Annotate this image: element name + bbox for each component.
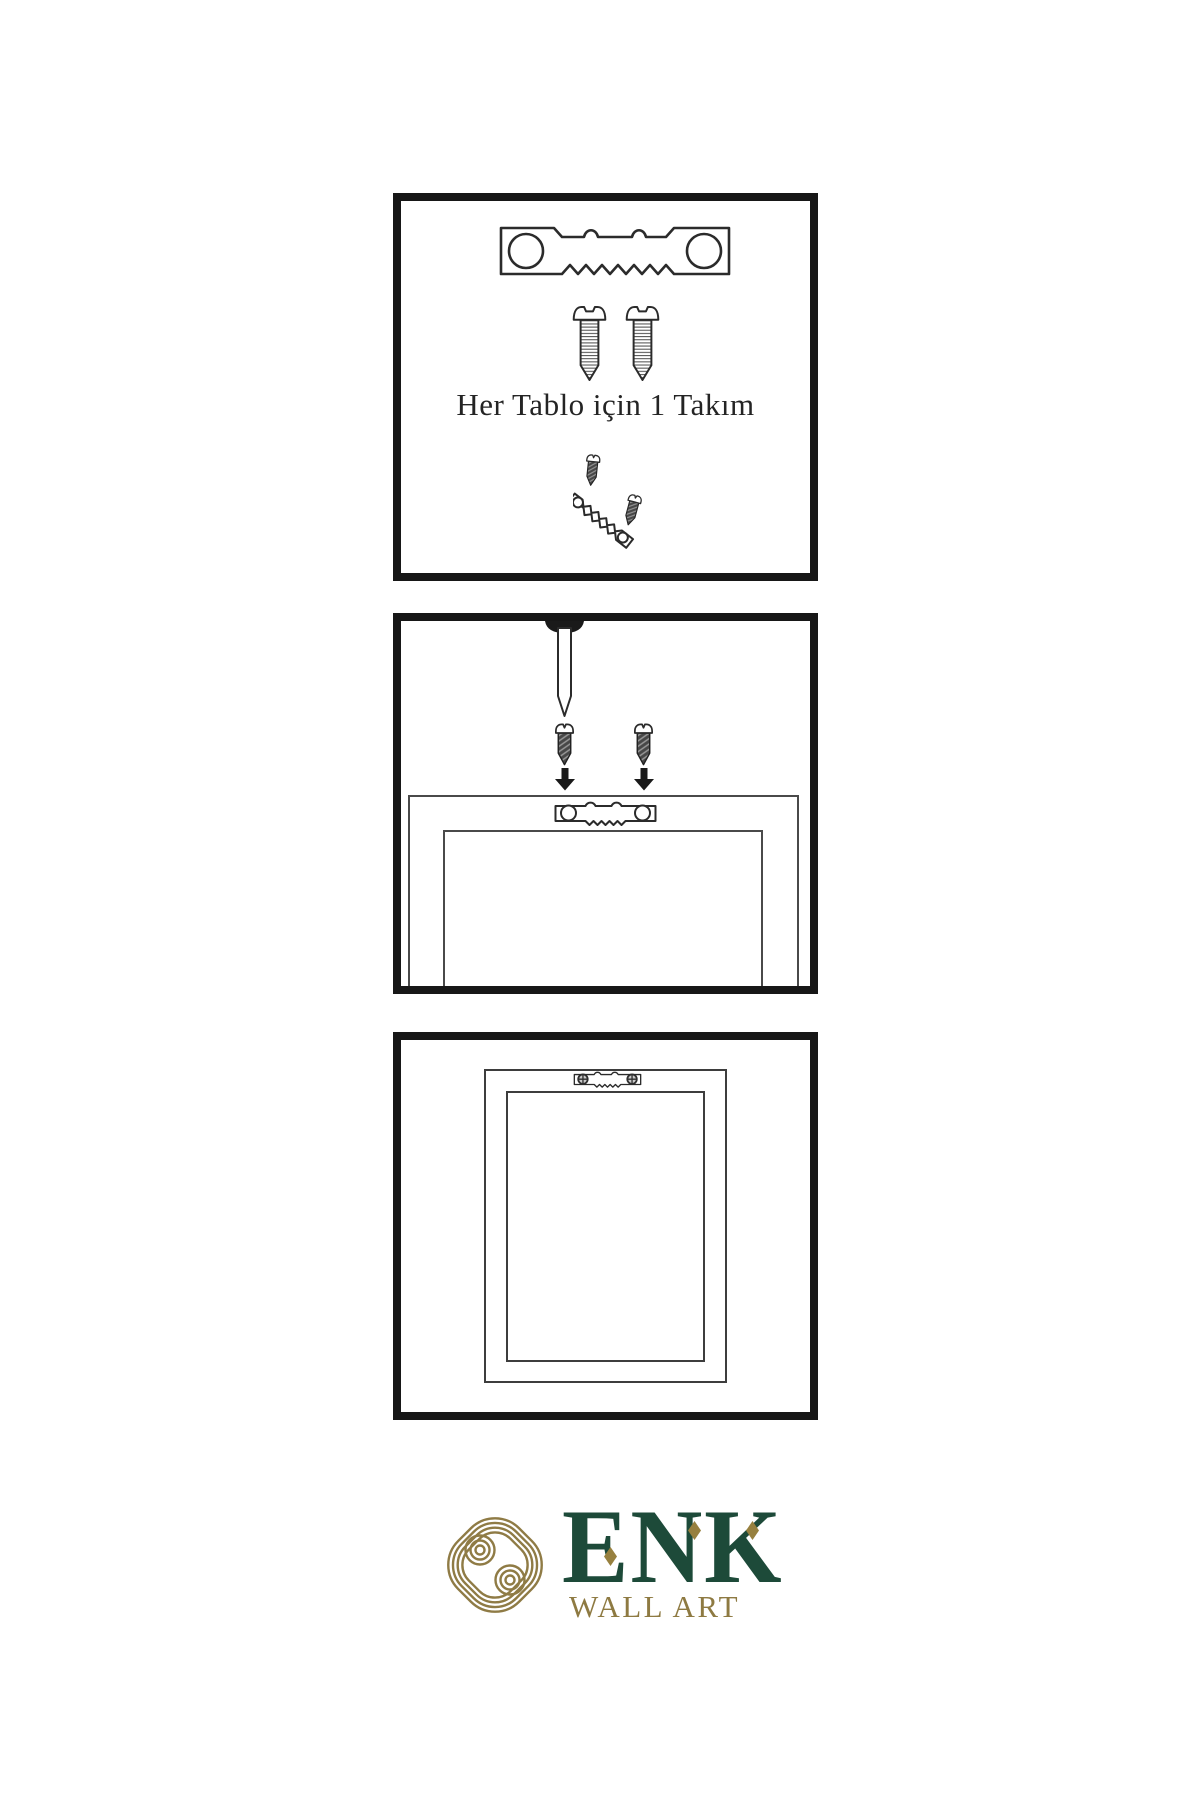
step-2-panel bbox=[393, 613, 818, 994]
arrow-down-icon bbox=[555, 768, 575, 791]
tilted-hanger-with-screws-icon bbox=[573, 449, 659, 559]
sawtooth-hanger-icon bbox=[553, 800, 658, 827]
kit-caption: Her Tablo için 1 Takım bbox=[401, 387, 810, 423]
screw-icon bbox=[553, 722, 576, 767]
instruction-sheet: Her Tablo için 1 Takım bbox=[0, 0, 1200, 1800]
step-1-panel: Her Tablo için 1 Takım bbox=[393, 193, 818, 581]
sawtooth-hanger-icon bbox=[498, 223, 732, 279]
interlocking-knot-icon bbox=[438, 1502, 552, 1628]
step-3-panel bbox=[393, 1032, 818, 1420]
hanging-frame-inner-outline bbox=[506, 1091, 705, 1362]
sawtooth-hanger-with-screws-icon bbox=[573, 1070, 642, 1089]
brand-name: ENK bbox=[562, 1494, 784, 1600]
brand-tagline: WALL ART bbox=[569, 1591, 740, 1622]
screw-icon bbox=[571, 304, 608, 381]
screw-icon bbox=[632, 722, 655, 767]
frame-back-inner-outline bbox=[443, 830, 763, 994]
arrow-down-icon bbox=[634, 768, 654, 791]
screw-icon bbox=[624, 304, 661, 381]
wall-nail-icon bbox=[544, 620, 585, 720]
